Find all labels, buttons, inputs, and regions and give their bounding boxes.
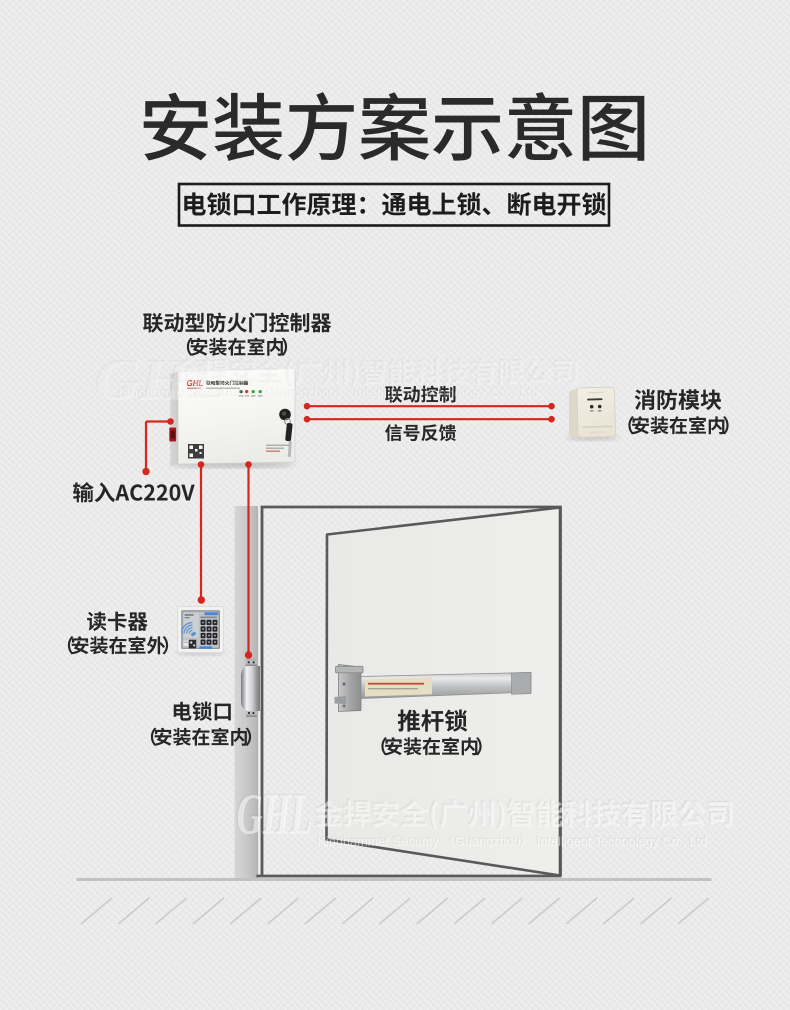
svg-text:GHL: GHL bbox=[237, 783, 313, 847]
svg-text:Kinghammer Security （Guangzhou: Kinghammer Security （Guangzhou） Intellig… bbox=[119, 386, 540, 401]
svg-text:Kinghammer Security （Guangzhou: Kinghammer Security （Guangzhou） Intellig… bbox=[318, 835, 708, 849]
